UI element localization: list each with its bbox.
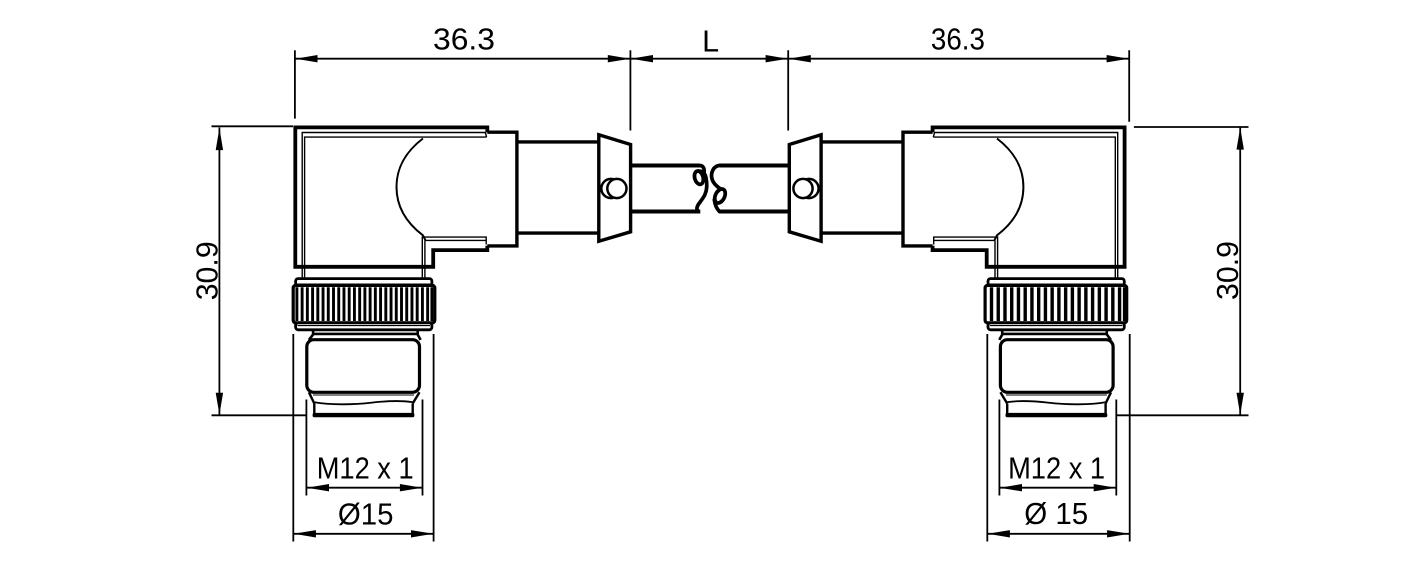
svg-text:M12 x 1: M12 x 1 [1008,452,1105,486]
svg-text:36.3: 36.3 [931,23,985,57]
svg-text:36.3: 36.3 [433,23,495,57]
svg-text:Ø 15: Ø 15 [1024,497,1088,531]
svg-text:Ø15: Ø15 [338,498,394,532]
svg-text:30.9: 30.9 [190,241,224,300]
svg-text:30.9: 30.9 [1211,241,1245,300]
svg-text:L: L [702,24,719,58]
svg-text:M12 x 1: M12 x 1 [317,452,414,486]
